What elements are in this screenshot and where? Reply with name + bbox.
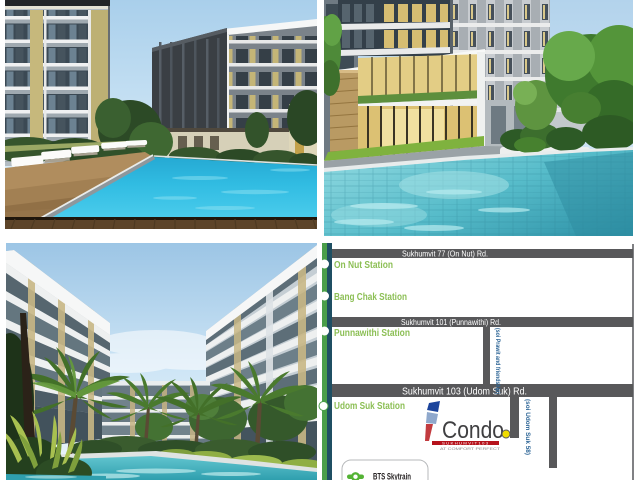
svg-text:BTS Skytrain: BTS Skytrain <box>373 472 411 480</box>
svg-text:Condo: Condo <box>442 417 504 444</box>
svg-text:Udom Suk Station: Udom Suk Station <box>334 401 405 412</box>
svg-text:S U K H U M V I T 1 0 3: S U K H U M V I T 1 0 3 <box>442 441 488 445</box>
svg-text:On Nut Station: On Nut Station <box>334 260 393 271</box>
svg-text:Sukhumvit 103 (Udom Suk) Rd.: Sukhumvit 103 (Udom Suk) Rd. <box>402 386 527 398</box>
svg-text:Sukhumvit 77 (On Nut) Rd.: Sukhumvit 77 (On Nut) Rd. <box>402 250 488 259</box>
svg-text:Sukhumvit 101 (Punnawithi) Rd.: Sukhumvit 101 (Punnawithi) Rd. <box>401 318 501 327</box>
svg-text:AT COMFORT PERFECT: AT COMFORT PERFECT <box>440 446 501 451</box>
svg-text:(soi Udom Suk 58): (soi Udom Suk 58) <box>524 399 531 455</box>
svg-text:Bang Chak Station: Bang Chak Station <box>334 292 407 303</box>
svg-text:Punnawithi Station: Punnawithi Station <box>334 328 410 339</box>
svg-text:(soi Prawit and friendship): (soi Prawit and friendship) <box>494 328 501 394</box>
